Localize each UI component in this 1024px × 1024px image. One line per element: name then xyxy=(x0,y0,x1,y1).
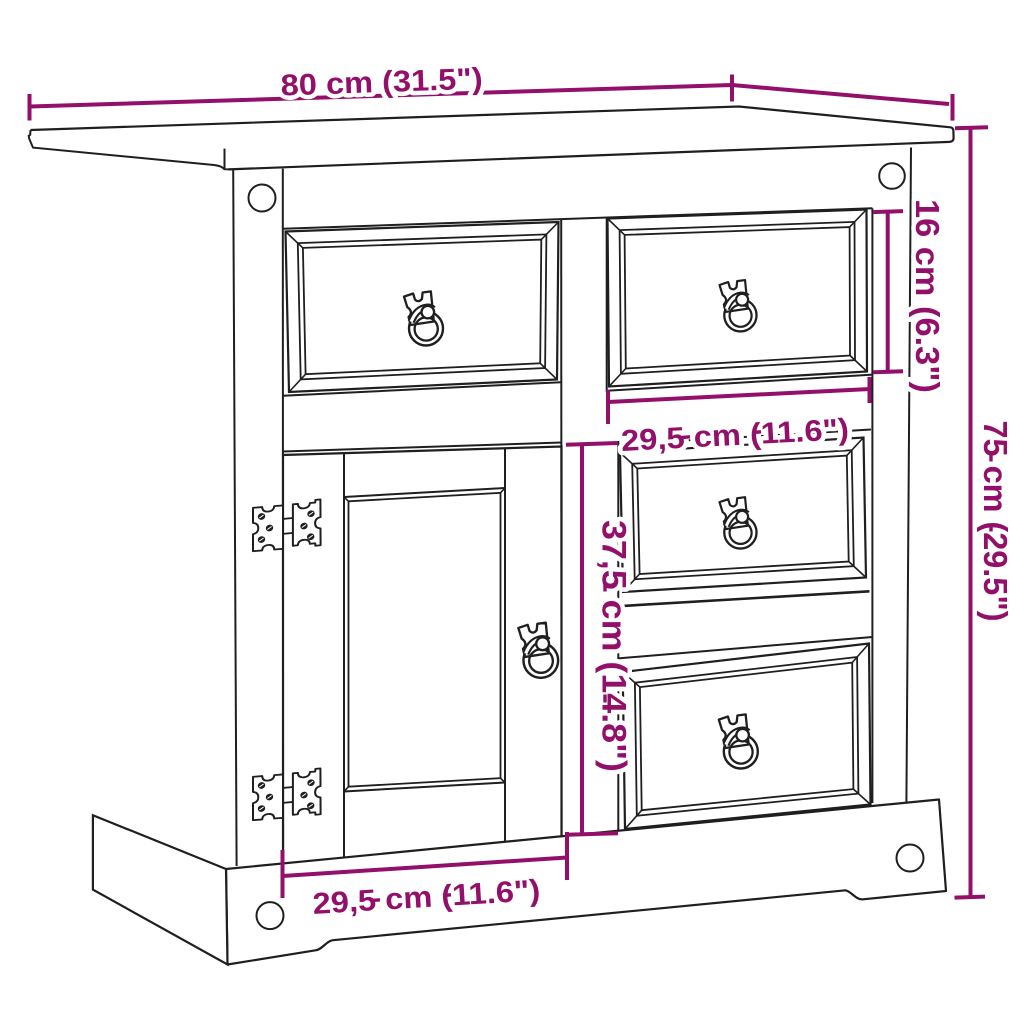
svg-text:37,5 cm (14.8"): 37,5 cm (14.8") xyxy=(595,520,633,772)
svg-text:75 cm (29.5"): 75 cm (29.5") xyxy=(976,421,1013,622)
svg-text:80 cm (31.5"): 80 cm (31.5") xyxy=(280,62,483,102)
svg-text:16 cm (6.3"): 16 cm (6.3") xyxy=(908,199,945,393)
